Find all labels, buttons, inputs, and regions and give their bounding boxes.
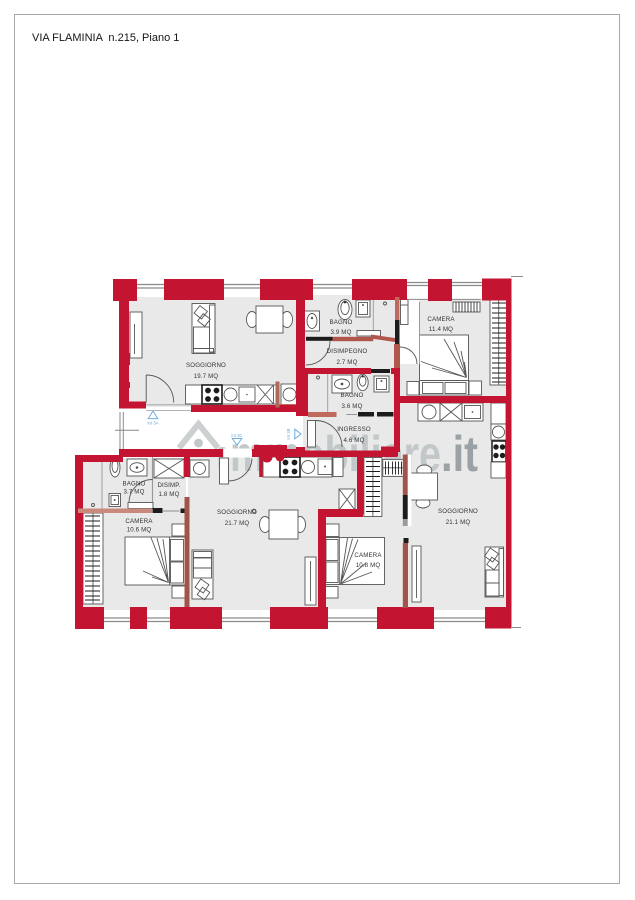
svg-text:1.8 MQ: 1.8 MQ: [158, 491, 179, 498]
svg-text:INGRESSO: INGRESSO: [337, 426, 371, 433]
svg-text:BAGNO: BAGNO: [341, 392, 364, 399]
svg-text:21.1 MQ: 21.1 MQ: [446, 519, 471, 526]
svg-text:BAGNO: BAGNO: [123, 481, 146, 488]
svg-text:CAMERA: CAMERA: [427, 316, 455, 323]
svg-text:DISIMPEGNO: DISIMPEGNO: [327, 348, 368, 355]
svg-text:19.7 MQ: 19.7 MQ: [194, 373, 219, 380]
svg-text:3.9 MQ: 3.9 MQ: [330, 329, 351, 336]
svg-text:SOGGIORNO: SOGGIORNO: [217, 509, 257, 516]
svg-text:10.8 MQ: 10.8 MQ: [356, 562, 381, 569]
svg-text:int 3B: int 3B: [286, 428, 291, 439]
svg-text:int 3C: int 3C: [231, 433, 242, 438]
svg-text:3.6 MQ: 3.6 MQ: [341, 403, 362, 410]
svg-text:2.7 MQ: 2.7 MQ: [336, 359, 357, 366]
svg-text:BAGNO: BAGNO: [330, 319, 353, 326]
svg-text:int 3A: int 3A: [148, 421, 159, 426]
svg-text:.it: .it: [441, 426, 478, 482]
svg-text:VIA FLAMINIA n.215, Piano 1: VIA FLAMINIA n.215, Piano 1: [32, 32, 179, 44]
svg-text:SOGGIORNO: SOGGIORNO: [186, 362, 226, 369]
svg-text:11.4 MQ: 11.4 MQ: [429, 326, 453, 333]
svg-text:CAMERA: CAMERA: [354, 552, 382, 559]
svg-text:21.7 MQ: 21.7 MQ: [225, 520, 250, 527]
svg-text:SOGGIORNO: SOGGIORNO: [438, 508, 478, 515]
svg-text:10.6 MQ: 10.6 MQ: [127, 527, 152, 534]
svg-text:DISIMP.: DISIMP.: [157, 482, 180, 489]
svg-text:3.7 MQ: 3.7 MQ: [123, 489, 144, 496]
svg-text:CAMERA: CAMERA: [125, 518, 153, 525]
svg-text:4.6 MQ: 4.6 MQ: [343, 437, 364, 444]
